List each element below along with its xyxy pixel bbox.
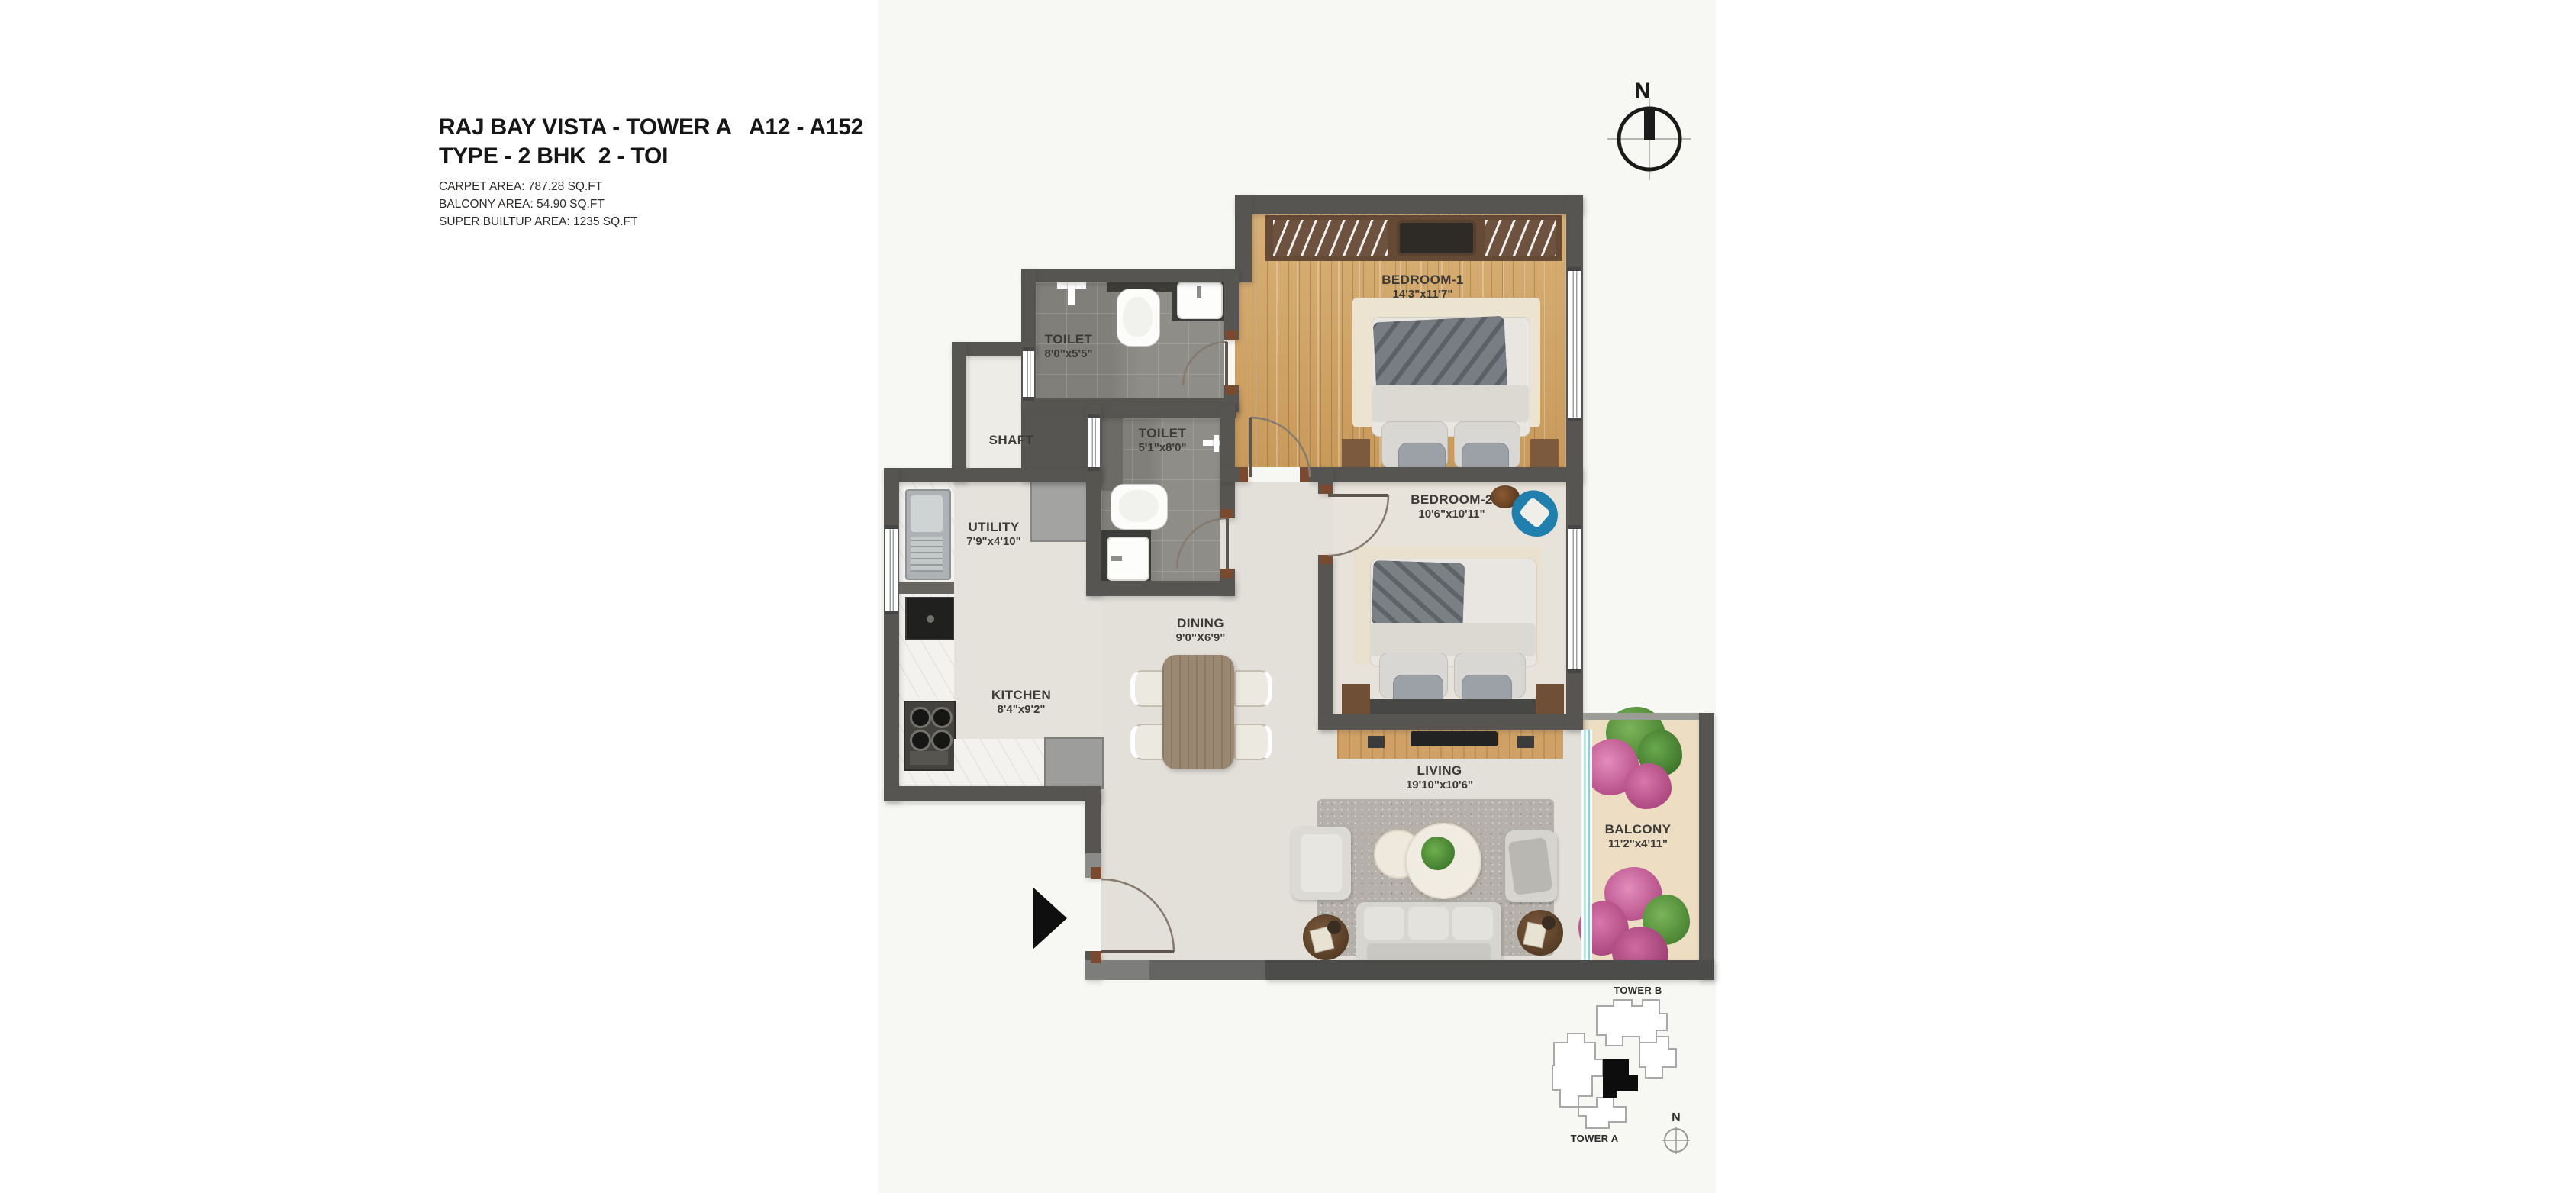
dining-chair (1234, 724, 1272, 760)
dining-table (1162, 655, 1234, 769)
door-jamb (1320, 485, 1332, 494)
dining-chair (1234, 670, 1272, 707)
throw-blanket (1373, 316, 1508, 395)
room-name: UTILITY (966, 519, 1020, 535)
floorplan-page: RAJ BAY VISTA - TOWER A A12 - A152 TYPE … (0, 0, 2576, 1193)
armchair (1291, 827, 1351, 900)
wardrobe-slats-left (1273, 220, 1388, 256)
wall-utility-kitchen-divider (899, 582, 954, 594)
room-dim: 10'6"x10'11" (1411, 508, 1493, 522)
wall-bedroom2-left-lower (1318, 555, 1333, 730)
door-jamb (1091, 951, 1101, 963)
bedside-block (1342, 684, 1370, 714)
tap-stem (1214, 435, 1219, 452)
bedroom1-bed (1372, 317, 1529, 482)
window-toilet1-vent (1023, 347, 1034, 401)
door-jamb (1239, 467, 1248, 482)
stove-burner (931, 707, 953, 728)
project-title: RAJ BAY VISTA - TOWER A A12 - A152 (439, 113, 863, 142)
wall-tap (1203, 435, 1221, 452)
wall-toilet2-right-upper (1220, 405, 1235, 518)
unit-type: TYPE - 2 BHK 2 - TOI (439, 142, 863, 171)
toilet2-dark-strip (1101, 418, 1123, 491)
side-table-round (1303, 914, 1349, 960)
wall-toilet1-right-upper (1224, 269, 1239, 340)
wall-bedroom1-top (1235, 195, 1583, 214)
sofa-cushion (1364, 907, 1404, 940)
bedroom2-bed (1370, 559, 1536, 714)
room-dim: 7'9"x4'10" (966, 535, 1020, 550)
room-dim: 8'4"x9'2" (991, 703, 1051, 717)
room-label-balcony: BALCONY 11'2"x4'11" (1605, 821, 1672, 852)
door-jamb (1225, 385, 1237, 395)
sofa (1356, 902, 1501, 968)
entry-arrow (1033, 887, 1067, 950)
stove-tray (910, 751, 948, 765)
armchair-throw (1507, 837, 1552, 895)
utility-sink (905, 489, 951, 580)
toilet2-wc (1111, 484, 1168, 530)
console-item (1368, 736, 1385, 748)
room-name: SHAFT (989, 432, 1034, 448)
toilet1-wc (1117, 289, 1160, 347)
super-builtup-area: SUPER BUILTUP AREA: 1235 SQ.FT (439, 213, 863, 231)
armchair-seat (1301, 834, 1342, 892)
window-toilet2-vent (1088, 414, 1100, 471)
door-jamb (1300, 467, 1309, 482)
room-label-living: LIVING 19'10"x10'6" (1406, 763, 1473, 793)
floor-shaft (966, 356, 1021, 468)
balcony-plants-top (1585, 707, 1685, 817)
utility-appliance (1030, 481, 1089, 542)
kitchen-counter-bottom (954, 739, 1044, 786)
basin-tap (1111, 556, 1122, 561)
door-jamb (1091, 867, 1101, 879)
wardrobe-slats-right (1485, 220, 1556, 256)
room-dim: 5'1"x8'0" (1138, 441, 1186, 456)
room-name: TOILET (1138, 425, 1186, 441)
door-jamb (1221, 569, 1233, 578)
sofa-cushion (1408, 907, 1449, 940)
minimap-label-tower-a: TOWER A (1571, 1133, 1619, 1144)
sink-drainer (911, 537, 943, 572)
tv-console (1337, 730, 1563, 759)
stove-burner (910, 707, 931, 728)
basin-tap (1197, 286, 1201, 298)
room-label-kitchen: KITCHEN 8'4"x9'2" (991, 687, 1051, 717)
title-block: RAJ BAY VISTA - TOWER A A12 - A152 TYPE … (439, 113, 863, 231)
room-dim: 19'10"x10'6" (1406, 779, 1473, 793)
toilet1-basin (1177, 282, 1223, 319)
nightstand (1530, 439, 1559, 469)
nightstand (1342, 439, 1370, 469)
door-jamb (1320, 555, 1332, 564)
duvet-fold (1372, 385, 1529, 422)
wall-living-bottom-dark (1265, 960, 1714, 980)
armchair-cushion (1519, 497, 1552, 529)
room-label-utility: UTILITY 7'9"x4'10" (966, 519, 1020, 550)
refrigerator (1044, 737, 1104, 789)
stove-burner (931, 730, 953, 751)
wall-utility-top (884, 468, 1101, 482)
door-jamb (1221, 509, 1233, 518)
room-label-bedroom1: BEDROOM-1 14'3"x11'7" (1381, 272, 1464, 302)
wall-mid-right-of-bed1-door (1309, 467, 1583, 482)
wc-lid (1123, 297, 1153, 337)
sink-dot (927, 615, 934, 623)
room-label-dining: DINING 9'0"X6'9" (1176, 615, 1226, 646)
sofa-cushion (1452, 907, 1493, 940)
wall-toilet1-top (1021, 269, 1236, 282)
room-dim: 9'0"X6'9" (1176, 631, 1226, 646)
room-name: DINING (1176, 615, 1226, 631)
room-label-toilet1: TOILET 8'0"x5'5" (1044, 331, 1092, 362)
headboard (1367, 699, 1539, 714)
room-name: LIVING (1406, 763, 1473, 779)
pot (1542, 916, 1556, 930)
window-utility (885, 525, 898, 614)
wall-balcony-top (1583, 713, 1714, 720)
sink-basin (911, 495, 943, 532)
pot (1327, 921, 1341, 934)
console-item (1517, 736, 1534, 748)
room-dim: 8'0"x5'5" (1044, 347, 1092, 362)
room-name: BEDROOM-2 (1411, 492, 1493, 508)
room-label-bedroom2: BEDROOM-2 10'6"x10'11" (1411, 492, 1493, 522)
north-label: N (1627, 79, 1659, 105)
room-label-toilet2: TOILET 5'1"x8'0" (1138, 425, 1186, 456)
wardrobe (1265, 215, 1562, 261)
toilet2-basin (1107, 537, 1149, 581)
balcony-area: BALCONY AREA: 54.90 SQ.FT (439, 195, 863, 213)
wall-bedroom2-bottom (1318, 714, 1583, 730)
wardrobe-center-shelf (1400, 223, 1473, 253)
door-jamb (1225, 330, 1237, 340)
duvet-fold (1370, 623, 1536, 656)
area-statement: CARPET AREA: 787.28 SQ.FT BALCONY AREA: … (439, 178, 863, 231)
room-name: BEDROOM-1 (1381, 272, 1464, 288)
wall-living-bottom-mid (1149, 960, 1265, 980)
flowers-pink (1624, 763, 1672, 809)
wall-outer-left (884, 468, 899, 801)
side-table-round (1517, 910, 1563, 956)
stove-burner (910, 730, 931, 751)
wc-lid (1119, 490, 1159, 522)
wall-toilet2-top (1086, 405, 1236, 418)
room-dim: 14'3"x11'7" (1381, 288, 1464, 302)
wall-toilet2-bottom (1086, 581, 1235, 596)
kitchen-sink-black (905, 597, 954, 640)
minimap-label-tower-b: TOWER B (1614, 985, 1662, 996)
kitchen-stove (904, 701, 956, 771)
carpet-area: CARPET AREA: 787.28 SQ.FT (439, 178, 863, 195)
room-dim: 11'2"x4'11" (1605, 837, 1672, 852)
wall-kitchen-bottom (884, 786, 1101, 801)
bedside-block (1536, 684, 1564, 714)
wall-balcony-right (1699, 713, 1714, 980)
minimap-north-label: N (1672, 1111, 1681, 1125)
room-name: TOILET (1044, 331, 1092, 347)
balcony-sliding-glass (1581, 730, 1592, 960)
room-name: KITCHEN (991, 687, 1051, 703)
window-bedroom1 (1568, 267, 1581, 421)
room-label-shaft: SHAFT (989, 432, 1034, 448)
armchair (1505, 830, 1557, 902)
tv-set (1411, 731, 1498, 746)
room-name: BALCONY (1605, 821, 1672, 837)
wall-shaft-left (952, 342, 966, 482)
throw-blanket (1372, 560, 1465, 627)
window-bedroom2 (1568, 525, 1581, 673)
